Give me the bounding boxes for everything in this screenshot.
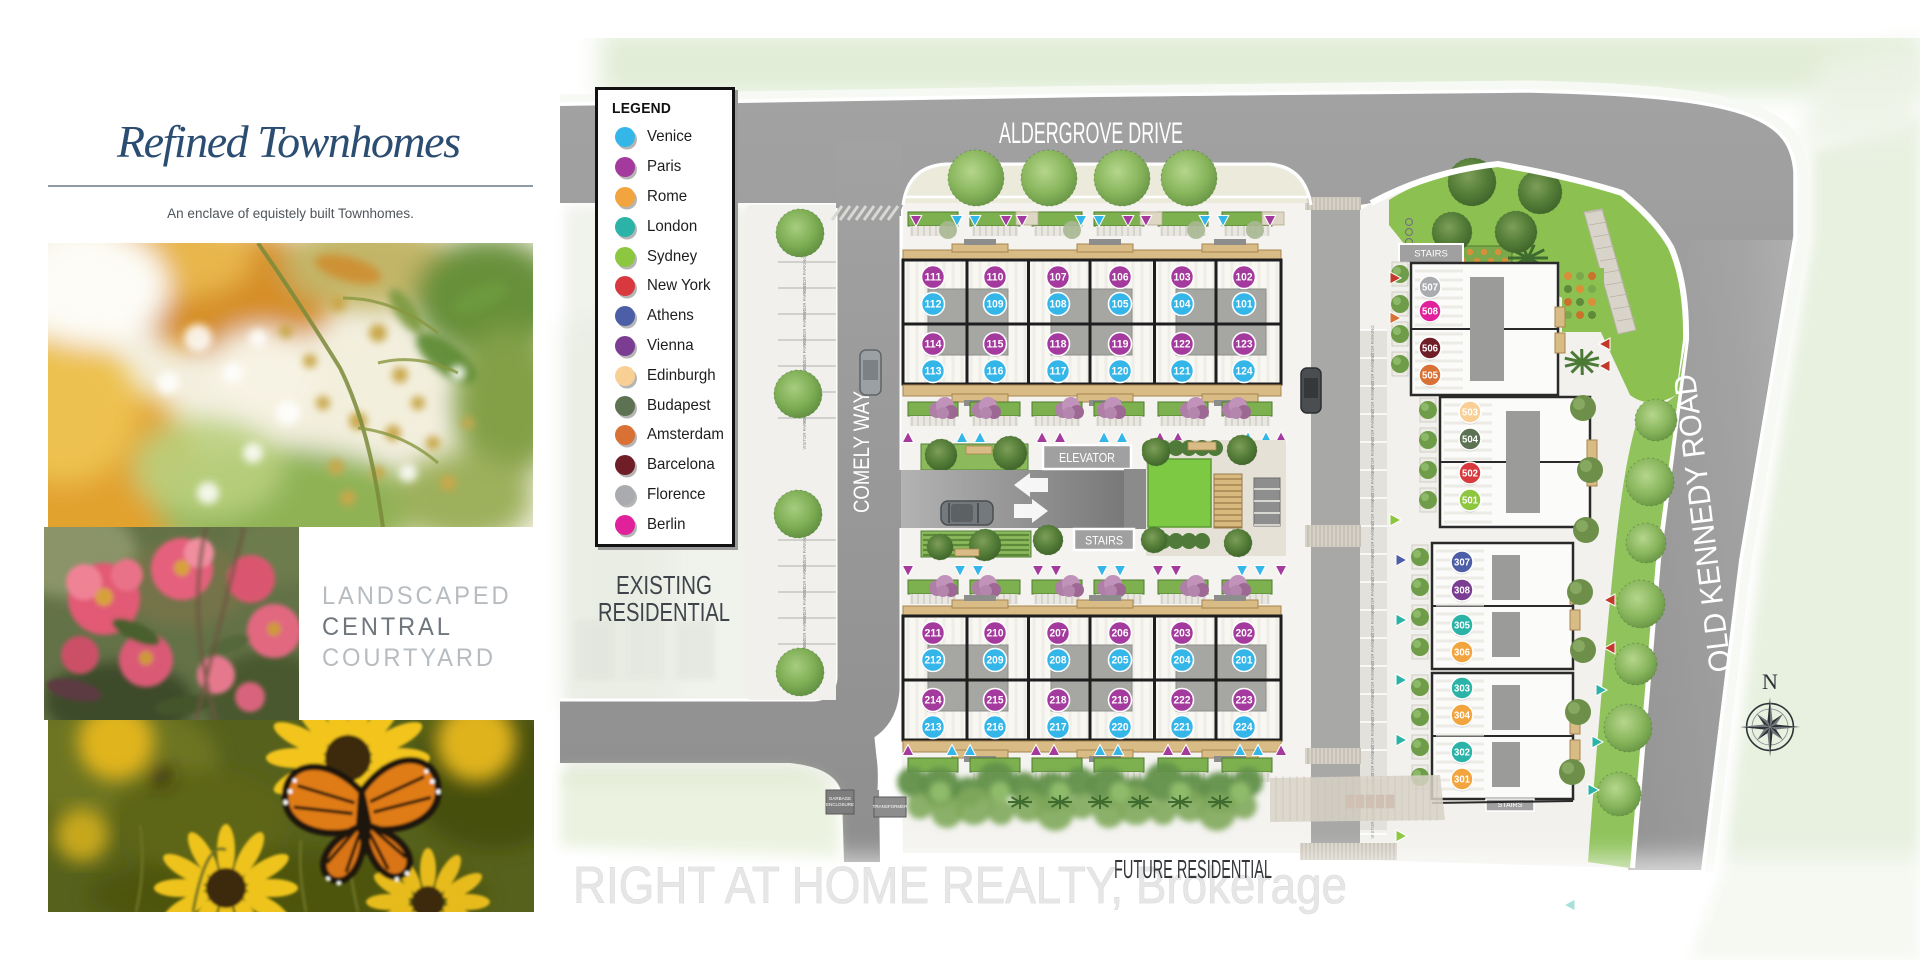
svg-text:302: 302: [1454, 747, 1470, 759]
svg-text:122: 122: [1174, 339, 1191, 351]
svg-text:506: 506: [1422, 343, 1438, 355]
svg-text:307: 307: [1454, 557, 1470, 569]
svg-text:119: 119: [1112, 339, 1129, 351]
svg-text:N: N: [1762, 669, 1778, 694]
svg-text:303: 303: [1454, 683, 1470, 695]
svg-text:Refined Townhomes: Refined Townhomes: [116, 116, 461, 167]
svg-text:218: 218: [1050, 695, 1067, 707]
svg-text:306: 306: [1454, 647, 1470, 659]
svg-text:206: 206: [1112, 628, 1129, 640]
svg-text:222: 222: [1174, 695, 1191, 707]
svg-text:215: 215: [987, 695, 1004, 707]
svg-text:113: 113: [925, 366, 942, 378]
svg-text:105: 105: [1112, 299, 1129, 311]
svg-text:208: 208: [1050, 655, 1067, 667]
svg-text:504: 504: [1462, 434, 1478, 446]
svg-text:501: 501: [1462, 495, 1478, 507]
svg-text:221: 221: [1174, 722, 1191, 734]
svg-text:STAIRS: STAIRS: [1498, 802, 1523, 809]
svg-text:503: 503: [1462, 407, 1478, 419]
svg-text:202: 202: [1236, 628, 1253, 640]
svg-text:GARBAGE: GARBAGE: [829, 796, 851, 801]
svg-text:204: 204: [1174, 655, 1192, 667]
svg-text:124: 124: [1236, 366, 1254, 378]
svg-text:209: 209: [987, 655, 1004, 667]
svg-text:111: 111: [925, 272, 942, 284]
svg-text:117: 117: [1050, 366, 1067, 378]
svg-text:223: 223: [1236, 695, 1253, 707]
svg-text:220: 220: [1112, 722, 1129, 734]
svg-text:COMELY WAY: COMELY WAY: [849, 391, 874, 513]
svg-text:110: 110: [987, 272, 1004, 284]
svg-text:107: 107: [1050, 272, 1067, 284]
svg-text:217: 217: [1050, 722, 1067, 734]
svg-text:116: 116: [987, 366, 1004, 378]
svg-text:112: 112: [925, 299, 942, 311]
svg-text:ENCLOSURE: ENCLOSURE: [826, 802, 854, 807]
svg-text:108: 108: [1050, 299, 1067, 311]
svg-text:FUTURE RESIDENTIAL: FUTURE RESIDENTIAL: [1114, 854, 1272, 884]
svg-text:507: 507: [1422, 282, 1438, 294]
svg-text:121: 121: [1174, 366, 1191, 378]
svg-text:212: 212: [925, 655, 942, 667]
svg-text:203: 203: [1174, 628, 1191, 640]
svg-text:224: 224: [1236, 722, 1254, 734]
svg-text:ELEVATOR: ELEVATOR: [1059, 450, 1115, 465]
svg-text:301: 301: [1454, 774, 1470, 786]
svg-text:219: 219: [1112, 695, 1129, 707]
svg-text:305: 305: [1454, 620, 1470, 632]
svg-text:104: 104: [1174, 299, 1192, 311]
svg-text:502: 502: [1462, 468, 1478, 480]
svg-text:213: 213: [925, 722, 942, 734]
svg-text:115: 115: [987, 339, 1004, 351]
svg-text:210: 210: [987, 628, 1004, 640]
svg-text:TRANSFORMER: TRANSFORMER: [873, 804, 909, 809]
svg-text:109: 109: [987, 299, 1004, 311]
svg-text:STAIRS: STAIRS: [1414, 249, 1448, 260]
svg-text:508: 508: [1422, 306, 1438, 318]
svg-text:201: 201: [1236, 655, 1253, 667]
svg-text:308: 308: [1454, 585, 1470, 597]
svg-text:211: 211: [925, 628, 942, 640]
svg-text:103: 103: [1174, 272, 1191, 284]
svg-text:207: 207: [1050, 628, 1067, 640]
svg-text:118: 118: [1050, 339, 1067, 351]
svg-text:304: 304: [1454, 710, 1470, 722]
svg-text:RESIDENTIAL: RESIDENTIAL: [598, 597, 730, 627]
svg-text:205: 205: [1112, 655, 1129, 667]
svg-text:114: 114: [925, 339, 943, 351]
svg-text:216: 216: [987, 722, 1004, 734]
svg-text:123: 123: [1236, 339, 1253, 351]
svg-text:214: 214: [925, 695, 943, 707]
svg-text:106: 106: [1112, 272, 1129, 284]
svg-text:EXISTING: EXISTING: [616, 570, 712, 600]
svg-text:505: 505: [1422, 370, 1438, 382]
svg-text:120: 120: [1112, 366, 1129, 378]
svg-text:102: 102: [1236, 272, 1253, 284]
svg-text:ALDERGROVE DRIVE: ALDERGROVE DRIVE: [999, 117, 1183, 150]
svg-text:101: 101: [1236, 299, 1253, 311]
svg-text:STAIRS: STAIRS: [1085, 534, 1123, 548]
